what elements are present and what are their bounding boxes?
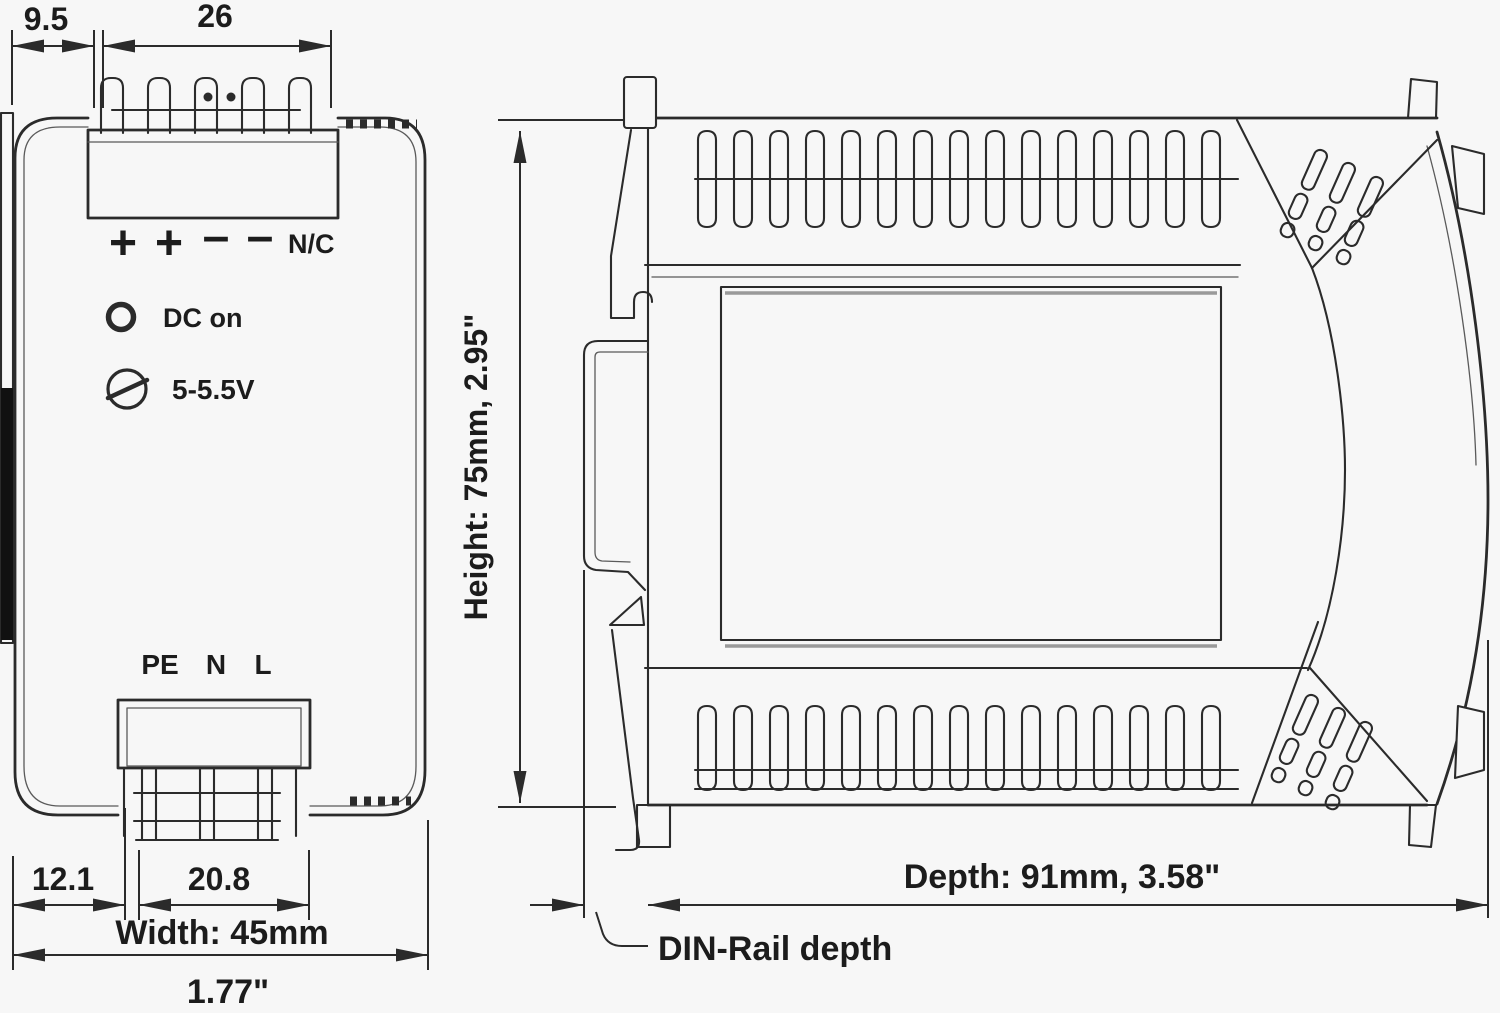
terminal-plus-2: + bbox=[155, 217, 183, 270]
din-rail-depth-label: DIN-Rail depth bbox=[658, 930, 892, 968]
dc-on-led-icon bbox=[109, 305, 134, 330]
front-step-top bbox=[1452, 146, 1484, 214]
terminal-plus-1: + bbox=[109, 217, 137, 270]
terminal-l-label: L bbox=[254, 649, 271, 680]
vent-slots-top bbox=[695, 131, 1238, 227]
din-rail-clip bbox=[584, 130, 652, 918]
side-front-curve bbox=[1437, 132, 1488, 804]
front-view: + + – – N/C DC on 5-5.5V PE N L bbox=[1, 78, 425, 840]
label-recess bbox=[721, 287, 1221, 646]
front-step-bottom bbox=[1455, 706, 1484, 778]
terminal-pe-label: PE bbox=[141, 649, 178, 680]
width-label: Width: 45mm bbox=[115, 914, 328, 952]
dim-rail-offset: 9.5 bbox=[24, 1, 68, 37]
vent-slots-bottom bbox=[695, 706, 1238, 790]
output-terminal-block bbox=[88, 78, 338, 218]
height-label: Height: 75mm, 2.95" bbox=[458, 314, 494, 621]
din-rail-leader bbox=[596, 912, 648, 946]
terminal-n-label: N bbox=[206, 649, 226, 680]
input-terminal-pins bbox=[142, 768, 272, 840]
corner-vents-bottom bbox=[1252, 622, 1427, 811]
tab-bottom-front bbox=[1409, 805, 1436, 847]
dim-output-terminal: 26 bbox=[197, 0, 233, 34]
led-label: DC on bbox=[163, 303, 242, 333]
pin-dot bbox=[204, 93, 213, 102]
tab-top-rear bbox=[624, 77, 656, 128]
pot-label: 5-5.5V bbox=[172, 374, 255, 405]
tab-top-front bbox=[1408, 79, 1437, 118]
terminal-minus-2: – bbox=[247, 210, 274, 263]
front-bezel-curve bbox=[1308, 268, 1345, 670]
width-inches: 1.77" bbox=[187, 973, 269, 1011]
input-terminal-block bbox=[118, 700, 310, 840]
terminal-minus-1: – bbox=[203, 210, 230, 263]
dim-bottom-left: 12.1 bbox=[32, 861, 94, 897]
din-rail-edge bbox=[1, 113, 13, 643]
potentiometer-icon bbox=[108, 370, 147, 408]
pin-dot bbox=[227, 93, 236, 102]
side-view bbox=[584, 77, 1488, 918]
output-terminal-pins bbox=[101, 78, 311, 133]
dimension-drawing: + + – – N/C DC on 5-5.5V PE N L bbox=[0, 0, 1500, 1013]
corner-vents-top bbox=[1237, 120, 1437, 268]
tab-bottom-rear bbox=[637, 805, 670, 847]
terminal-nc-label: N/C bbox=[288, 229, 335, 259]
depth-label: Depth: 91mm, 3.58" bbox=[904, 858, 1221, 896]
dim-input-terminal: 20.8 bbox=[188, 861, 250, 897]
front-dimensions: 9.5 26 12.1 20.8 Width: 45mm 1.77" bbox=[12, 0, 428, 1011]
